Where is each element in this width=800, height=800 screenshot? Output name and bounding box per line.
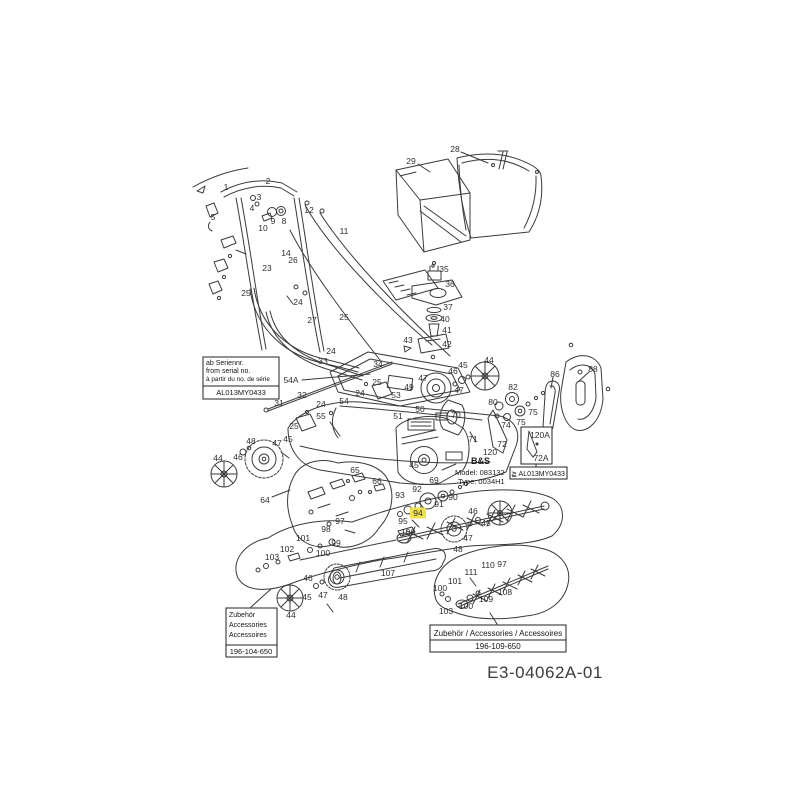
part-number-label: 45 (283, 434, 293, 444)
part-number-label: 29 (406, 156, 416, 166)
serial-code: AL013MY0433 (216, 388, 266, 397)
part-number-label: 55 (316, 411, 326, 421)
acc-left-de: Zubehör (229, 612, 256, 619)
part-number-label: 109 (479, 594, 493, 604)
part-number-label: 36 (445, 279, 455, 289)
part-number-label: 23 (262, 263, 272, 273)
part-number-label: 103 (265, 552, 279, 562)
part-number-label: 1 (224, 182, 229, 192)
part-number-label: 107 (381, 568, 395, 578)
part-number-label: 95 (398, 516, 408, 526)
part-number-label: 41 (442, 325, 452, 335)
part-number-label: 97 (335, 516, 345, 526)
tine-shaft-blob (236, 490, 563, 590)
part-number-label: 47 (418, 373, 428, 383)
part-number-label: 97 (497, 559, 507, 569)
part-number-label: 93 (395, 490, 405, 500)
part-number-label: 108 (498, 587, 512, 597)
part-number-label: 44 (286, 610, 296, 620)
part-number-label: 25 (289, 421, 299, 431)
part-number-label: 48 (453, 544, 463, 554)
serial-line-en: from serial no. (206, 368, 250, 375)
acc-right-title: Zubehör / Accessories / Accessoires (434, 629, 563, 638)
part-number-label: 49 (404, 382, 414, 392)
part-number-label: 45 (302, 592, 312, 602)
part-number-label: 27 (307, 315, 317, 325)
part-number-label: 24 (293, 297, 303, 307)
part-number-label: 72A (533, 453, 548, 463)
part-number-label: 24 (316, 399, 326, 409)
part-number-label: 53 (391, 390, 401, 400)
part-number-label: 8 (282, 216, 287, 226)
part-number-label: 94 (413, 508, 423, 518)
part-number-label: 44 (484, 355, 494, 365)
part-number-label: 111 (465, 567, 478, 577)
exploded-parts-diagram: ab Seriennr. from serial no. à partir du… (0, 0, 800, 800)
variant-serial-code: ≧ AL013MY0433 (511, 471, 565, 478)
part-number-label: 34 (373, 359, 383, 369)
part-number-label: 43 (403, 335, 413, 345)
part-number-label: 120 (483, 447, 497, 457)
part-number-label: 99 (331, 538, 341, 548)
part-number-label: 75 (516, 417, 526, 427)
part-number-label: 88 (588, 364, 598, 374)
part-number-label: 110 (481, 560, 495, 570)
part-number-label: 74 (501, 420, 511, 430)
accessories-box-left: Zubehör Accessories Accessoires 196-104-… (226, 608, 277, 657)
engine-brand: B&S (471, 456, 490, 466)
part-number-label: 2 (266, 176, 271, 186)
part-number-label: 12 (304, 205, 314, 215)
part-number-label: 101 (448, 576, 462, 586)
part-number-label: 46 (233, 452, 243, 462)
belt-and-cover (543, 343, 610, 432)
part-number-label: 106 (401, 527, 415, 537)
part-number-label: 50 (415, 404, 425, 414)
part-number-label: 44 (213, 453, 223, 463)
part-number-label: 70 (451, 410, 461, 420)
part-number-label: 45 (409, 460, 419, 470)
part-number-label: 26 (288, 255, 298, 265)
part-number-label: 45 (481, 518, 491, 528)
part-number-label: 72 (497, 439, 507, 449)
part-number-label: 48 (246, 436, 256, 446)
part-number-label: 4 (250, 203, 255, 213)
part-number-label: 33 (318, 356, 328, 366)
part-number-label: 47 (463, 533, 473, 543)
part-number-label: 42 (442, 339, 452, 349)
handle-assembly (193, 168, 363, 380)
part-number-label: 91 (434, 499, 444, 509)
part-number-label: 54 (339, 396, 349, 406)
engine-type: Type: 0034H1 (458, 477, 505, 486)
accessories-box-right: Zubehör / Accessories / Accessoires 196-… (430, 625, 566, 652)
part-number-label: 120A (530, 430, 550, 440)
part-number-label: 10 (258, 223, 268, 233)
part-number-label: 54A (283, 375, 298, 385)
part-number-label: 100 (316, 548, 330, 558)
part-number-label: 47 (272, 438, 282, 448)
engine-model: Model: 083132 (455, 468, 505, 477)
part-number-label: 46 (303, 573, 313, 583)
drawing-code: E3-04062A-01 (487, 663, 603, 682)
part-number-label: 66 (372, 476, 382, 486)
acc-left-code: 196-104-650 (230, 647, 273, 656)
part-number-label: 9 (271, 216, 276, 226)
part-number-label: 45 (458, 360, 468, 370)
part-number-label: 102 (280, 544, 294, 554)
serial-line-fr: à partir du no. de série (206, 376, 270, 383)
engine-plate: B&S Model: 083132 Type: 0034H1 (455, 456, 505, 486)
part-number-label: 3 (257, 192, 262, 202)
serial-line-de: ab Seriennr. (206, 360, 244, 367)
part-number-label: 64 (260, 495, 270, 505)
part-number-label: 37 (443, 302, 453, 312)
part-number-label: 47 (318, 590, 328, 600)
leader-lines (251, 152, 589, 624)
part-number-label: 24 (326, 346, 336, 356)
acc-left-en: Accessories (229, 622, 267, 629)
control-cables (290, 201, 450, 360)
part-number-label: 82 (508, 382, 518, 392)
part-number-label: 35 (439, 264, 449, 274)
part-number-label: 46 (468, 506, 478, 516)
acc-right-code: 196-109-650 (475, 642, 521, 651)
part-number-label: 24 (355, 388, 365, 398)
part-number-label: 11 (340, 226, 349, 236)
part-number-label: 51 (393, 411, 403, 421)
grass-bag (396, 151, 542, 252)
part-number-label: 47 (454, 385, 464, 395)
part-number-label: 75 (528, 407, 538, 417)
part-number-label: 65 (350, 465, 360, 475)
part-number-label: 100 (459, 601, 473, 611)
part-number-label: 28 (450, 144, 460, 154)
serial-number-box: ab Seriennr. from serial no. à partir du… (203, 357, 279, 399)
part-number-label: 80 (488, 397, 498, 407)
acc-left-fr: Accessoires (229, 632, 267, 639)
part-number-label: 48 (338, 592, 348, 602)
part-number-label: 25 (241, 288, 251, 298)
part-number-label: 25 (339, 312, 349, 322)
parts-diagram-page: ab Seriennr. from serial no. à partir du… (0, 0, 800, 800)
part-number-label: 32 (297, 390, 307, 400)
part-number-label: 98 (321, 524, 331, 534)
part-number-label: 31 (274, 398, 284, 408)
part-number-label: 40 (440, 314, 450, 324)
part-number-label: 25 (372, 377, 382, 387)
part-number-label: 90 (448, 492, 458, 502)
part-number-label: 92 (412, 484, 422, 494)
part-number-label: 69 (429, 475, 439, 485)
part-number-label: 100 (433, 583, 447, 593)
part-number-label: 86 (550, 369, 560, 379)
part-number-label: 71 (468, 434, 478, 444)
part-number-label: 101 (296, 533, 310, 543)
part-number-label: 5 (211, 212, 216, 222)
part-number-label: 46 (448, 366, 458, 376)
part-number-label: 103 (439, 606, 453, 616)
